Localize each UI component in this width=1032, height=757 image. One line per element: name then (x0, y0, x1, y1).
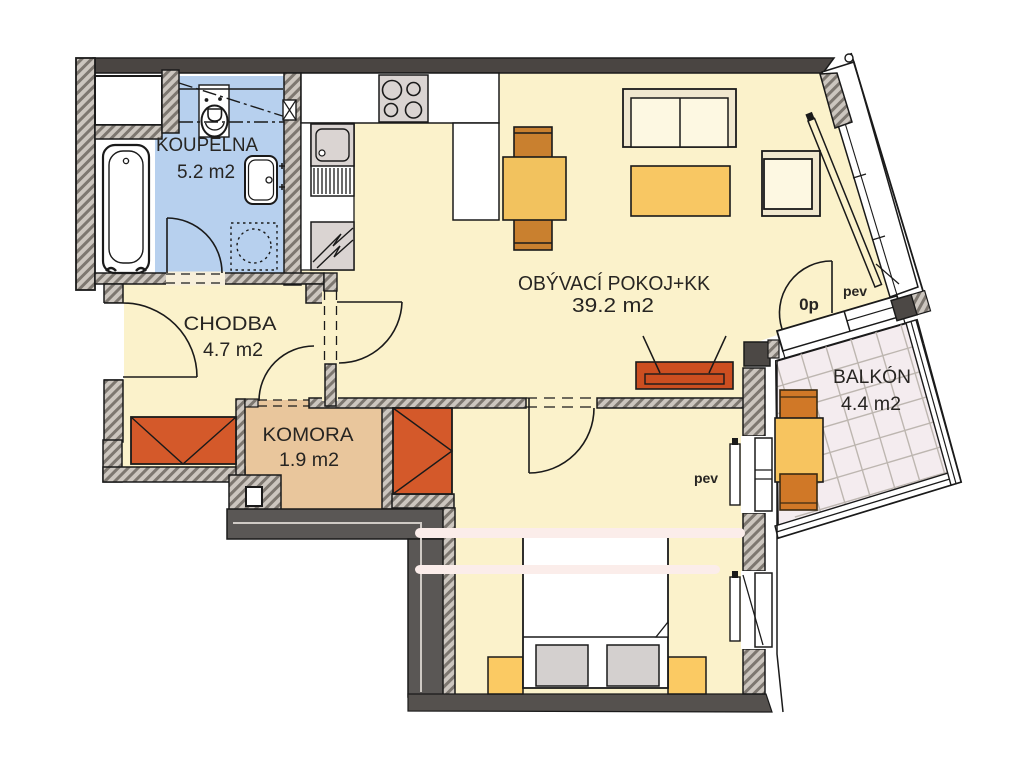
svg-text:pev: pev (843, 283, 867, 299)
svg-text:KOMORA: KOMORA (263, 424, 354, 446)
svg-text:1.9 m2: 1.9 m2 (279, 449, 339, 471)
svg-text:0p: 0p (799, 295, 819, 314)
svg-text:39.2 m2: 39.2 m2 (572, 294, 654, 317)
svg-text:pev: pev (694, 470, 718, 486)
svg-text:KOUPELNA: KOUPELNA (156, 134, 258, 156)
svg-text:BALKÓN: BALKÓN (833, 365, 911, 388)
svg-text:OBÝVACÍ POKOJ+KK: OBÝVACÍ POKOJ+KK (518, 272, 710, 295)
svg-text:4.4 m2: 4.4 m2 (841, 393, 901, 415)
svg-text:5.2 m2: 5.2 m2 (177, 161, 235, 183)
svg-text:4.7 m2: 4.7 m2 (203, 339, 263, 361)
svg-text:CHODBA: CHODBA (184, 313, 277, 335)
